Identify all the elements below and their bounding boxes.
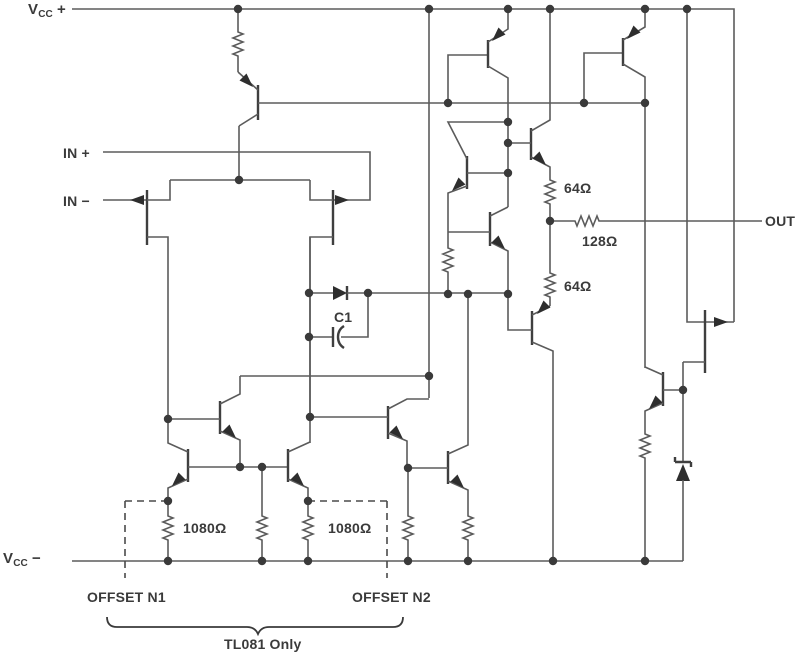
jfet-input-right bbox=[310, 180, 333, 443]
resistor-1080-right bbox=[303, 501, 313, 561]
diode-d1 bbox=[309, 286, 508, 300]
resistor-128-label: 128Ω bbox=[582, 233, 617, 249]
out-line bbox=[550, 216, 762, 226]
transistor-qa bbox=[448, 122, 508, 232]
in-minus-label: IN − bbox=[63, 193, 90, 209]
resistor-1080-left bbox=[163, 501, 173, 561]
transistor-qc bbox=[168, 376, 240, 467]
resistor-64-bottom-label: 64Ω bbox=[564, 278, 591, 294]
input-in-minus-wire bbox=[103, 195, 147, 205]
transistor-qi bbox=[448, 122, 508, 294]
resistor-q1-bias bbox=[233, 9, 243, 72]
vcc-minus-label: VCC − bbox=[3, 550, 41, 569]
schematic-page: VCC + IN + IN − C1 64Ω 128Ω 64Ω OUT 1080… bbox=[0, 0, 797, 654]
jfet-input-left bbox=[147, 180, 170, 419]
resistor-qk-emitter bbox=[463, 514, 473, 561]
transistor-qh bbox=[645, 367, 683, 432]
tl081-only-label: TL081 Only bbox=[224, 636, 301, 652]
transistor-q3-pnp bbox=[584, 9, 645, 368]
transistor-qk bbox=[408, 294, 468, 514]
transistor-qf bbox=[310, 399, 429, 468]
resistor-128 bbox=[573, 216, 601, 226]
resistor-1080-right-label: 1080Ω bbox=[328, 520, 371, 536]
resistor-qa-emitter bbox=[443, 232, 453, 294]
transistor-qe bbox=[288, 442, 310, 501]
tl081-only-brace bbox=[107, 617, 403, 634]
mid-column-wire bbox=[240, 9, 429, 398]
resistor-64-bottom bbox=[545, 221, 555, 306]
transistor-q2-pnp bbox=[448, 9, 508, 122]
vcc-plus-rail bbox=[72, 9, 734, 322]
c1-label: C1 bbox=[334, 309, 352, 325]
resistor-center bbox=[257, 467, 267, 561]
offset-n2-dashed-wire bbox=[308, 501, 387, 578]
resistor-qh-emitter bbox=[640, 432, 650, 561]
resistor-qf-emitter bbox=[403, 468, 413, 561]
offset-n1-label: OFFSET N1 bbox=[87, 589, 166, 605]
resistor-64-top bbox=[545, 178, 555, 221]
resistor-64-top-label: 64Ω bbox=[564, 180, 591, 196]
resistor-1080-left-label: 1080Ω bbox=[183, 520, 226, 536]
schematic-canvas bbox=[0, 0, 797, 654]
transistor-qj-output-pnp bbox=[508, 294, 553, 561]
in-plus-label: IN + bbox=[63, 145, 90, 161]
vcc-plus-label: VCC + bbox=[28, 1, 66, 20]
offset-n2-label: OFFSET N2 bbox=[352, 589, 431, 605]
offset-n1-dashed-wire bbox=[125, 501, 168, 578]
jfet-output bbox=[683, 9, 734, 373]
junction-dots bbox=[164, 5, 691, 565]
out-label: OUT bbox=[765, 213, 795, 229]
transistor-qb-output-npn bbox=[508, 9, 550, 178]
